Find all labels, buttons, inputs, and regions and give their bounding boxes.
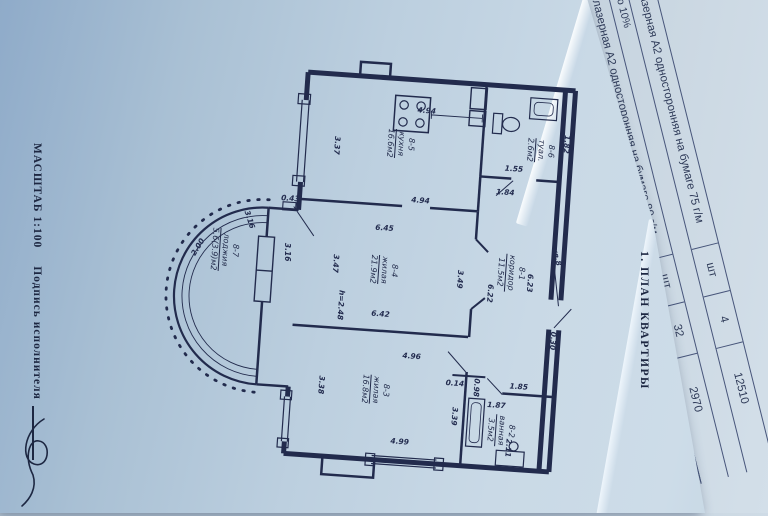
dim-label: 1.84 [496, 187, 515, 197]
dim-label: 4.96 [402, 351, 421, 361]
room-label: 8-3жилая16.8м2 [359, 374, 392, 405]
interior-walls [284, 72, 576, 472]
room-label: 8-7лоджия5.6(3.9)м2 [208, 227, 242, 272]
room-label: 8-1коридор11.5м2 [494, 253, 528, 293]
dim-label: 3.47 [331, 254, 341, 273]
dim-label: 0.14 [445, 378, 464, 388]
dim-label: 3.49 [455, 270, 465, 289]
dim-label: 1.87 [487, 400, 506, 410]
plan-title: 1. ПЛАН КВАРТИРЫ [638, 251, 650, 390]
room-label: 8-2ванная3.5м2 [484, 414, 517, 448]
dim-label: 1.85 [509, 381, 528, 391]
plan-sheet: МАСШТАБ 1:100Подпись исполнителя 1. ПЛАН… [0, 0, 768, 513]
dim-label: 6.45 [375, 223, 394, 233]
dim-label: 6.23 [525, 274, 535, 293]
dim-label: 4.94 [417, 105, 436, 115]
signature-icon [10, 413, 62, 509]
dim-label: 1.55 [504, 164, 523, 174]
dim-label: 3.16 [283, 243, 292, 262]
dim-label: 0.30 [548, 331, 558, 350]
room-label: 8-5кухня16.6м2 [384, 128, 417, 159]
scale-label: МАСШТАБ 1:100 [31, 143, 43, 248]
dim-label: 0.98 [471, 378, 481, 397]
dim-label: 3.38 [316, 375, 326, 394]
plan-sheet-wrap: МАСШТАБ 1:100Подпись исполнителя 1. ПЛАН… [0, 0, 768, 513]
dim-label: 3.37 [332, 136, 342, 155]
room-label: 8-6туал.2.6м2 [524, 138, 557, 164]
signer-label: Подпись исполнителя [31, 266, 43, 400]
dim-label: 3.39 [449, 407, 459, 426]
sink-icon [529, 98, 557, 121]
dim-label: 1.82 [562, 135, 572, 154]
dim-label: 0.43 [281, 193, 300, 203]
bathtub-icon [465, 398, 484, 447]
dim-label: 4.94 [411, 195, 430, 205]
loggia-walls [159, 193, 301, 394]
dim-label: 4.99 [390, 436, 409, 446]
floor-plan: 4.944.946.456.424.964.991.551.841.851.87… [145, 33, 624, 495]
balcony-door-icon [254, 236, 274, 302]
room-label: 8-4жилая21.9м2 [367, 254, 400, 285]
toilet-icon [492, 113, 520, 135]
photo-root: { "photo": { "paper_blue": "#b9cfdf", "s… [0, 0, 768, 513]
dim-label: 6.42 [371, 309, 390, 319]
